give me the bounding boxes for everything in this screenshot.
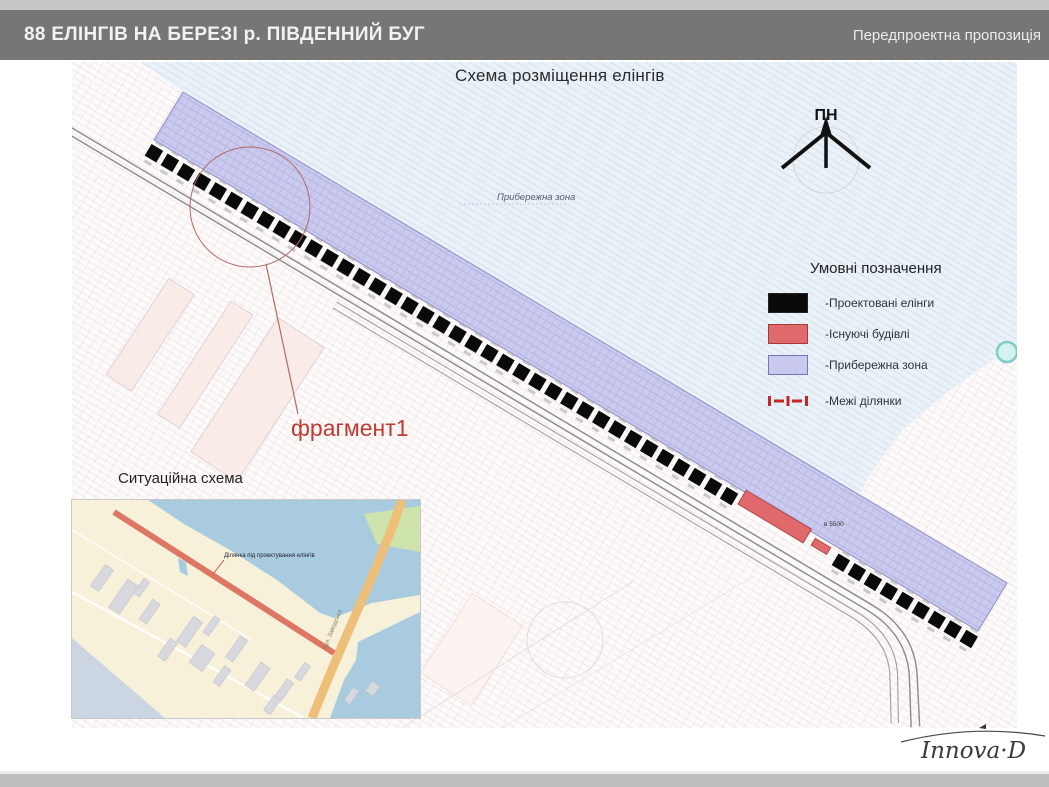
legend-item-coastal: -Прибережна зона bbox=[768, 355, 1023, 375]
boundary-dashdot-icon bbox=[768, 391, 808, 411]
situational-map: Ділянка під проектування елінгів вул. За… bbox=[72, 500, 420, 718]
dimension-label: в 5500 bbox=[824, 521, 844, 528]
slide-page: 88 ЕЛІНГІВ НА БЕРЕЗІ р. ПІВДЕННИЙ БУГ Пе… bbox=[0, 0, 1049, 787]
existing-industrial-buildings bbox=[106, 278, 324, 482]
header-subtitle: Передпроектна пропозиція bbox=[853, 27, 1041, 44]
map-title: Схема розміщення елінгів bbox=[455, 66, 665, 86]
legend-item-boundary: -Межі ділянки bbox=[768, 391, 1023, 411]
top-strip bbox=[0, 0, 1049, 10]
coastal-zone-map-label: Прибережна зона bbox=[497, 192, 575, 203]
legend-title: Умовні позначення bbox=[810, 260, 1023, 277]
page-title: 88 ЕЛІНГІВ НА БЕРЕЗІ р. ПІВДЕННИЙ БУГ bbox=[24, 24, 425, 46]
legend-item-elings: -Проектовані елінги bbox=[768, 293, 1023, 313]
coastal-swatch bbox=[768, 355, 808, 375]
company-logo: Innova·D bbox=[893, 720, 1049, 772]
existing-swatch bbox=[768, 324, 808, 344]
logo-text: Innova·D bbox=[921, 738, 1049, 764]
eling-swatch bbox=[768, 293, 808, 313]
bottom-bar bbox=[0, 774, 1049, 787]
north-label: ПН bbox=[814, 107, 837, 124]
inset-title: Ситуаційна схема bbox=[118, 470, 243, 487]
inset-site-label: Ділянка під проектування елінгів bbox=[224, 553, 315, 559]
legend-item-existing: -Існуючі будівлі bbox=[768, 324, 1023, 344]
fragment-label: фрагмент1 bbox=[291, 415, 409, 442]
header-bar: 88 ЕЛІНГІВ НА БЕРЕЗІ р. ПІВДЕННИЙ БУГ Пе… bbox=[0, 10, 1049, 60]
cadastral-outlines bbox=[402, 577, 752, 728]
legend: Умовні позначення -Проектовані елінги -І… bbox=[768, 252, 1023, 422]
